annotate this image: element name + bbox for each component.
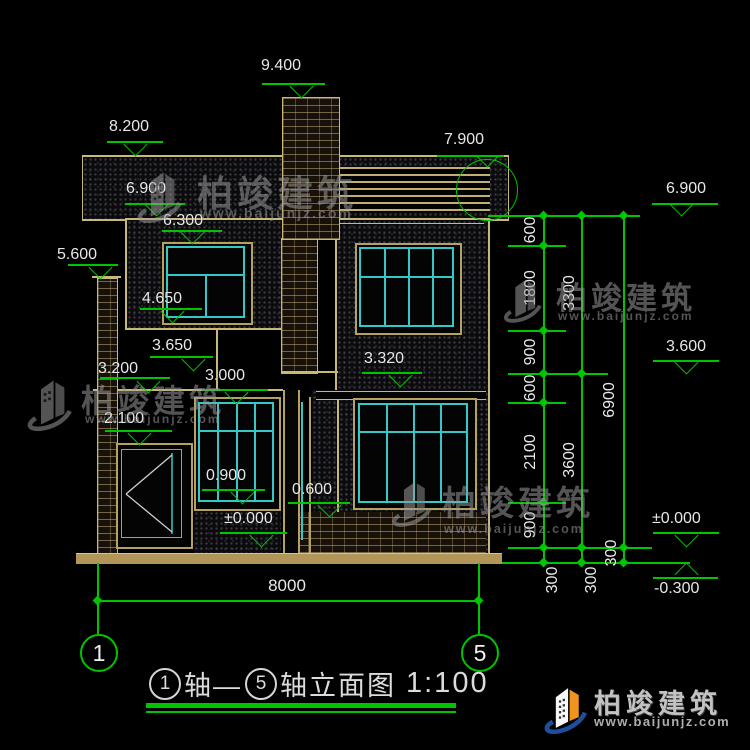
title-axis-circle-5: 5 xyxy=(245,668,277,700)
dim-label: 8000 xyxy=(257,576,317,596)
dim-label: 1800 xyxy=(522,270,540,306)
title-scale: 1:100 xyxy=(406,667,489,700)
entry-door-frame xyxy=(116,443,193,549)
window-ground-right-frame xyxy=(353,398,477,510)
dim-label: 900 xyxy=(522,512,540,539)
dim-chain-line xyxy=(543,215,545,562)
level-label: 3.000 xyxy=(205,367,245,385)
dim-label: 600 xyxy=(522,217,540,244)
title-text: 轴立面图 xyxy=(280,664,396,703)
dim-chain-line xyxy=(581,215,583,562)
dim-label: 300 xyxy=(583,567,601,594)
dim-label: 3600 xyxy=(561,442,579,478)
parapet-inner-line xyxy=(337,223,484,224)
title-underline-thin xyxy=(146,711,456,713)
dim-label: 2100 xyxy=(522,434,540,470)
dim-label: 6900 xyxy=(601,382,619,418)
level-label: 3.600 xyxy=(666,338,706,356)
level-label: 5.600 xyxy=(57,246,97,264)
sidelight-line xyxy=(301,402,303,540)
level-label: 9.400 xyxy=(261,57,301,75)
level-label: 0.900 xyxy=(206,467,246,485)
title-underline-thick xyxy=(146,703,456,708)
porch-column xyxy=(283,390,300,554)
plinth-wall xyxy=(296,512,486,553)
dim-label: 300 xyxy=(603,540,621,567)
axis-bubble-1: 1 xyxy=(80,634,118,672)
detail-callout-circle xyxy=(456,159,518,221)
window-ground-right xyxy=(358,403,468,503)
chimney xyxy=(282,97,340,240)
title-axis-circle-1: 1 xyxy=(149,668,181,700)
entry-door xyxy=(121,449,182,538)
window-upper-right-frame xyxy=(355,243,462,335)
level-label: -0.300 xyxy=(654,580,699,598)
dim-label: 900 xyxy=(522,339,540,366)
footer-site: www.baijunjz.com xyxy=(594,714,730,729)
watermark-logo-icon xyxy=(23,372,77,432)
level-label: ±0.000 xyxy=(224,510,273,528)
panel-bottom-line xyxy=(281,371,338,373)
elevation-drawing: 9.400 8.200 7.900 6.900 6.300 5.600 4.65… xyxy=(0,0,750,750)
level-label: 8.200 xyxy=(109,118,149,136)
axis-number: 5 xyxy=(474,640,487,667)
level-label: 6.900 xyxy=(126,180,166,198)
dim-label: 600 xyxy=(522,375,540,402)
window-upper-right xyxy=(359,247,454,327)
title-text: 轴— xyxy=(184,664,242,703)
sidelight-frame-line xyxy=(309,397,311,554)
level-label: 6.300 xyxy=(163,212,203,230)
axis-number: 1 xyxy=(93,640,106,667)
watermark-site: www.baijunjz.com xyxy=(558,309,694,323)
level-label: 0.600 xyxy=(292,481,332,499)
dim-label: 3300 xyxy=(561,275,579,311)
level-label: 7.900 xyxy=(444,131,484,149)
level-label: 4.650 xyxy=(142,290,182,308)
level-label: 3.650 xyxy=(152,337,192,355)
door-swing-icon xyxy=(122,450,181,537)
level-label: ±0.000 xyxy=(652,510,701,528)
dim-chain-line xyxy=(623,215,625,562)
level-label: 2.100 xyxy=(104,410,144,428)
ground-slab xyxy=(76,553,502,564)
stone-wall-panel xyxy=(281,238,318,374)
drawing-title: 1 轴— 5 轴立面图 1:100 xyxy=(146,664,489,703)
level-label: 6.900 xyxy=(666,180,706,198)
brand-logo-icon xyxy=(542,682,588,734)
level-label: 3.320 xyxy=(364,350,404,368)
level-label: 3.200 xyxy=(98,360,138,378)
dim-line-8000 xyxy=(97,600,478,602)
dim-label: 300 xyxy=(544,567,562,594)
